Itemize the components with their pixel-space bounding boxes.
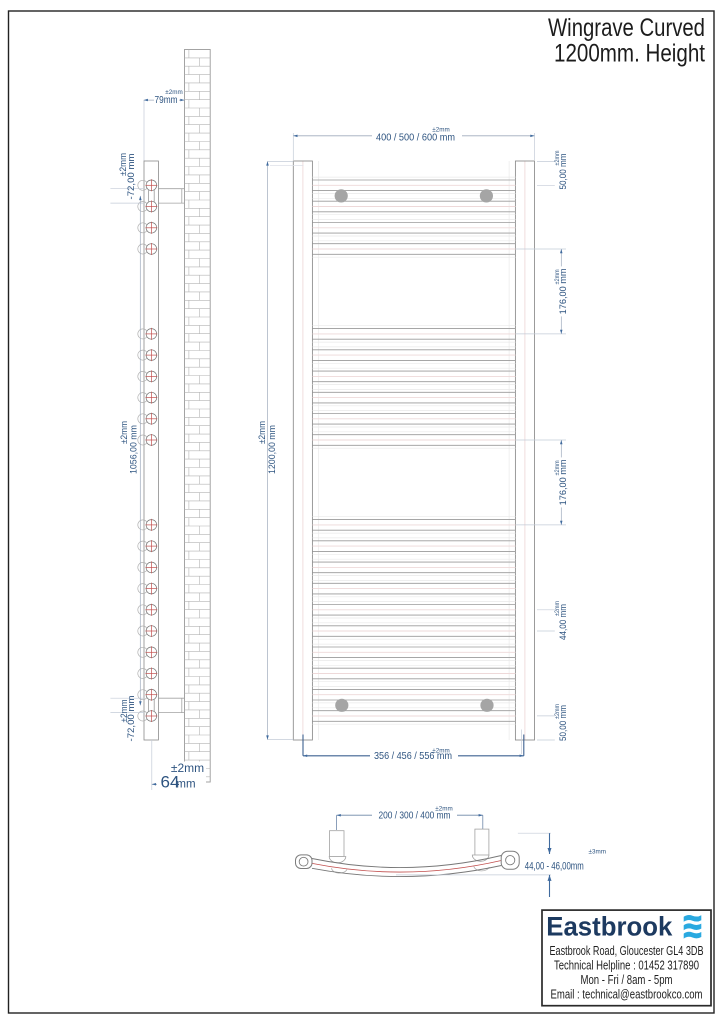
svg-text:±2mm: ±2mm — [554, 704, 561, 719]
svg-text:±2mm: ±2mm — [119, 421, 129, 444]
svg-text:Eastbrook Road, Gloucester GL4: Eastbrook Road, Gloucester GL4 3DB — [550, 943, 704, 958]
svg-text:79mm: 79mm — [155, 95, 178, 106]
svg-text:±2mm: ±2mm — [165, 89, 182, 96]
svg-text:±2mm: ±2mm — [432, 127, 449, 134]
svg-text:±2mm: ±2mm — [554, 151, 561, 166]
svg-text:±2mm: ±2mm — [171, 761, 204, 775]
svg-text:±2mm: ±2mm — [257, 421, 267, 444]
svg-text:±2mm: ±2mm — [118, 153, 128, 176]
svg-text:1200,00 mm: 1200,00 mm — [267, 425, 278, 474]
svg-text:44,00 - 46,00mm: 44,00 - 46,00mm — [525, 861, 584, 873]
svg-text:±2mm: ±2mm — [435, 805, 452, 812]
svg-text:Email : technical@eastbrookco.: Email : technical@eastbrookco.com — [551, 986, 703, 1001]
svg-text:Technical Helpline : 01452 317: Technical Helpline : 01452 317890 — [554, 957, 699, 972]
svg-text:1200mm. Height: 1200mm. Height — [554, 40, 705, 68]
svg-text:±2mm: ±2mm — [554, 601, 561, 616]
svg-text:Mon - Fri / 8am - 5pm: Mon - Fri / 8am - 5pm — [581, 972, 673, 987]
svg-text:±3mm: ±3mm — [589, 849, 606, 856]
svg-text:±2mm: ±2mm — [554, 269, 561, 284]
svg-text:400 / 500 / 600 mm: 400 / 500 / 600 mm — [376, 133, 455, 144]
svg-text:Eastbrook: Eastbrook — [546, 912, 672, 942]
svg-text:±2mm: ±2mm — [432, 747, 449, 754]
svg-text:mm: mm — [176, 778, 195, 790]
svg-text:1056,00 mm: 1056,00 mm — [129, 425, 140, 474]
svg-text:±2mm: ±2mm — [119, 700, 129, 723]
svg-text:±2mm: ±2mm — [554, 460, 561, 475]
svg-text:Wingrave Curved: Wingrave Curved — [548, 14, 705, 42]
